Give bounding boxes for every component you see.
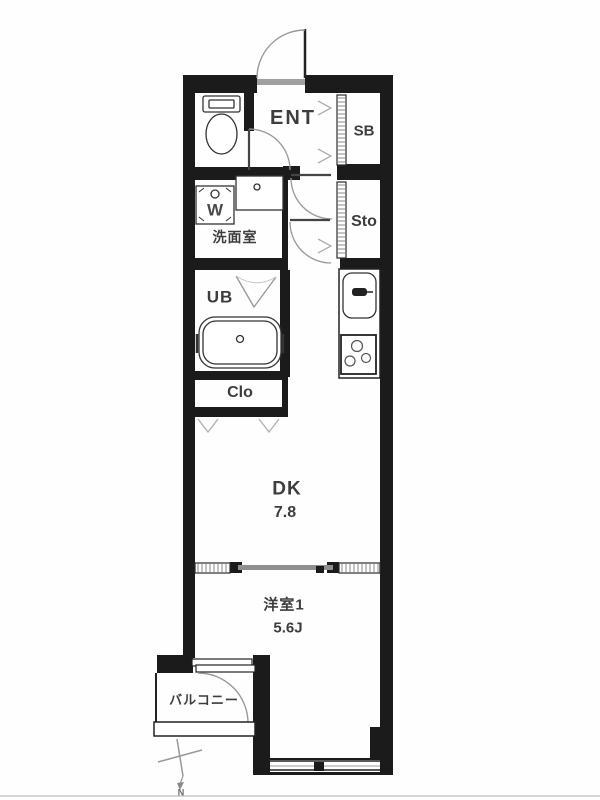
western-room-size: 5.6J <box>273 621 302 636</box>
page-divider <box>0 795 600 797</box>
floorplan-image: ENT SB Sto 洗面室 W UB Clo DK 7.8 洋室1 5.6J … <box>0 0 600 800</box>
unit-bath-door-icon <box>236 276 276 307</box>
shoebox-partition-hatch <box>337 95 346 165</box>
toilet-icon <box>203 96 240 154</box>
storage-partition-hatch <box>337 182 346 258</box>
storage-label: Sto <box>351 214 377 230</box>
compass-icon <box>158 739 202 790</box>
unit-bath-label: UB <box>207 289 234 306</box>
entrance-label: ENT <box>270 108 316 128</box>
window-icon <box>270 760 380 772</box>
washroom-label: 洗面室 <box>213 230 258 244</box>
dining-kitchen-size: 7.8 <box>274 505 296 521</box>
entrance-door-icon <box>257 29 305 78</box>
toilet-door-icon <box>249 129 290 170</box>
compass-north-label: N <box>178 789 185 798</box>
sliding-door-icon <box>238 565 333 573</box>
hall-door-lower-icon <box>290 220 331 263</box>
kitchen-counter <box>339 269 380 378</box>
shoe-box-label: SB <box>354 124 375 139</box>
washbasin-icon <box>236 176 283 210</box>
western-room-label: 洋室1 <box>263 598 304 613</box>
stove-icon <box>341 335 376 374</box>
balcony-glass-door-icon <box>192 659 255 672</box>
room-partition-hatch-left <box>195 563 230 573</box>
kitchen-sink-icon <box>343 273 376 318</box>
bathtub-icon <box>197 317 283 368</box>
washer-label: W <box>207 202 223 219</box>
dining-kitchen-label: DK <box>272 480 301 499</box>
louver-chevrons <box>318 101 331 253</box>
balcony-label: バルコニー <box>169 694 239 707</box>
closet-door-chevrons <box>198 419 279 432</box>
closet-label: Clo <box>227 385 253 401</box>
room-partition-hatch-right <box>339 563 380 573</box>
hall-door-upper-icon <box>291 175 332 219</box>
entrance-threshold <box>257 79 305 85</box>
